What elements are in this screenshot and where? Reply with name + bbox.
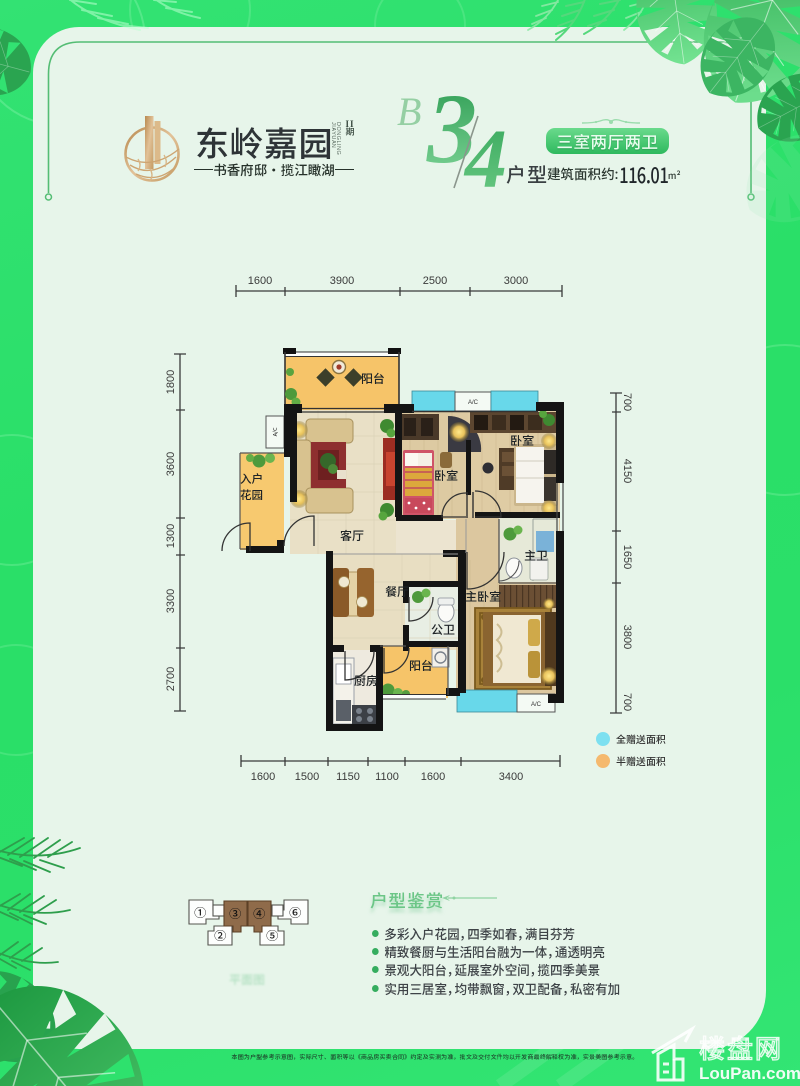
svg-text:楼盘网: 楼盘网 (699, 1029, 783, 1066)
svg-text:LouPan.com: LouPan.com (699, 1064, 800, 1083)
